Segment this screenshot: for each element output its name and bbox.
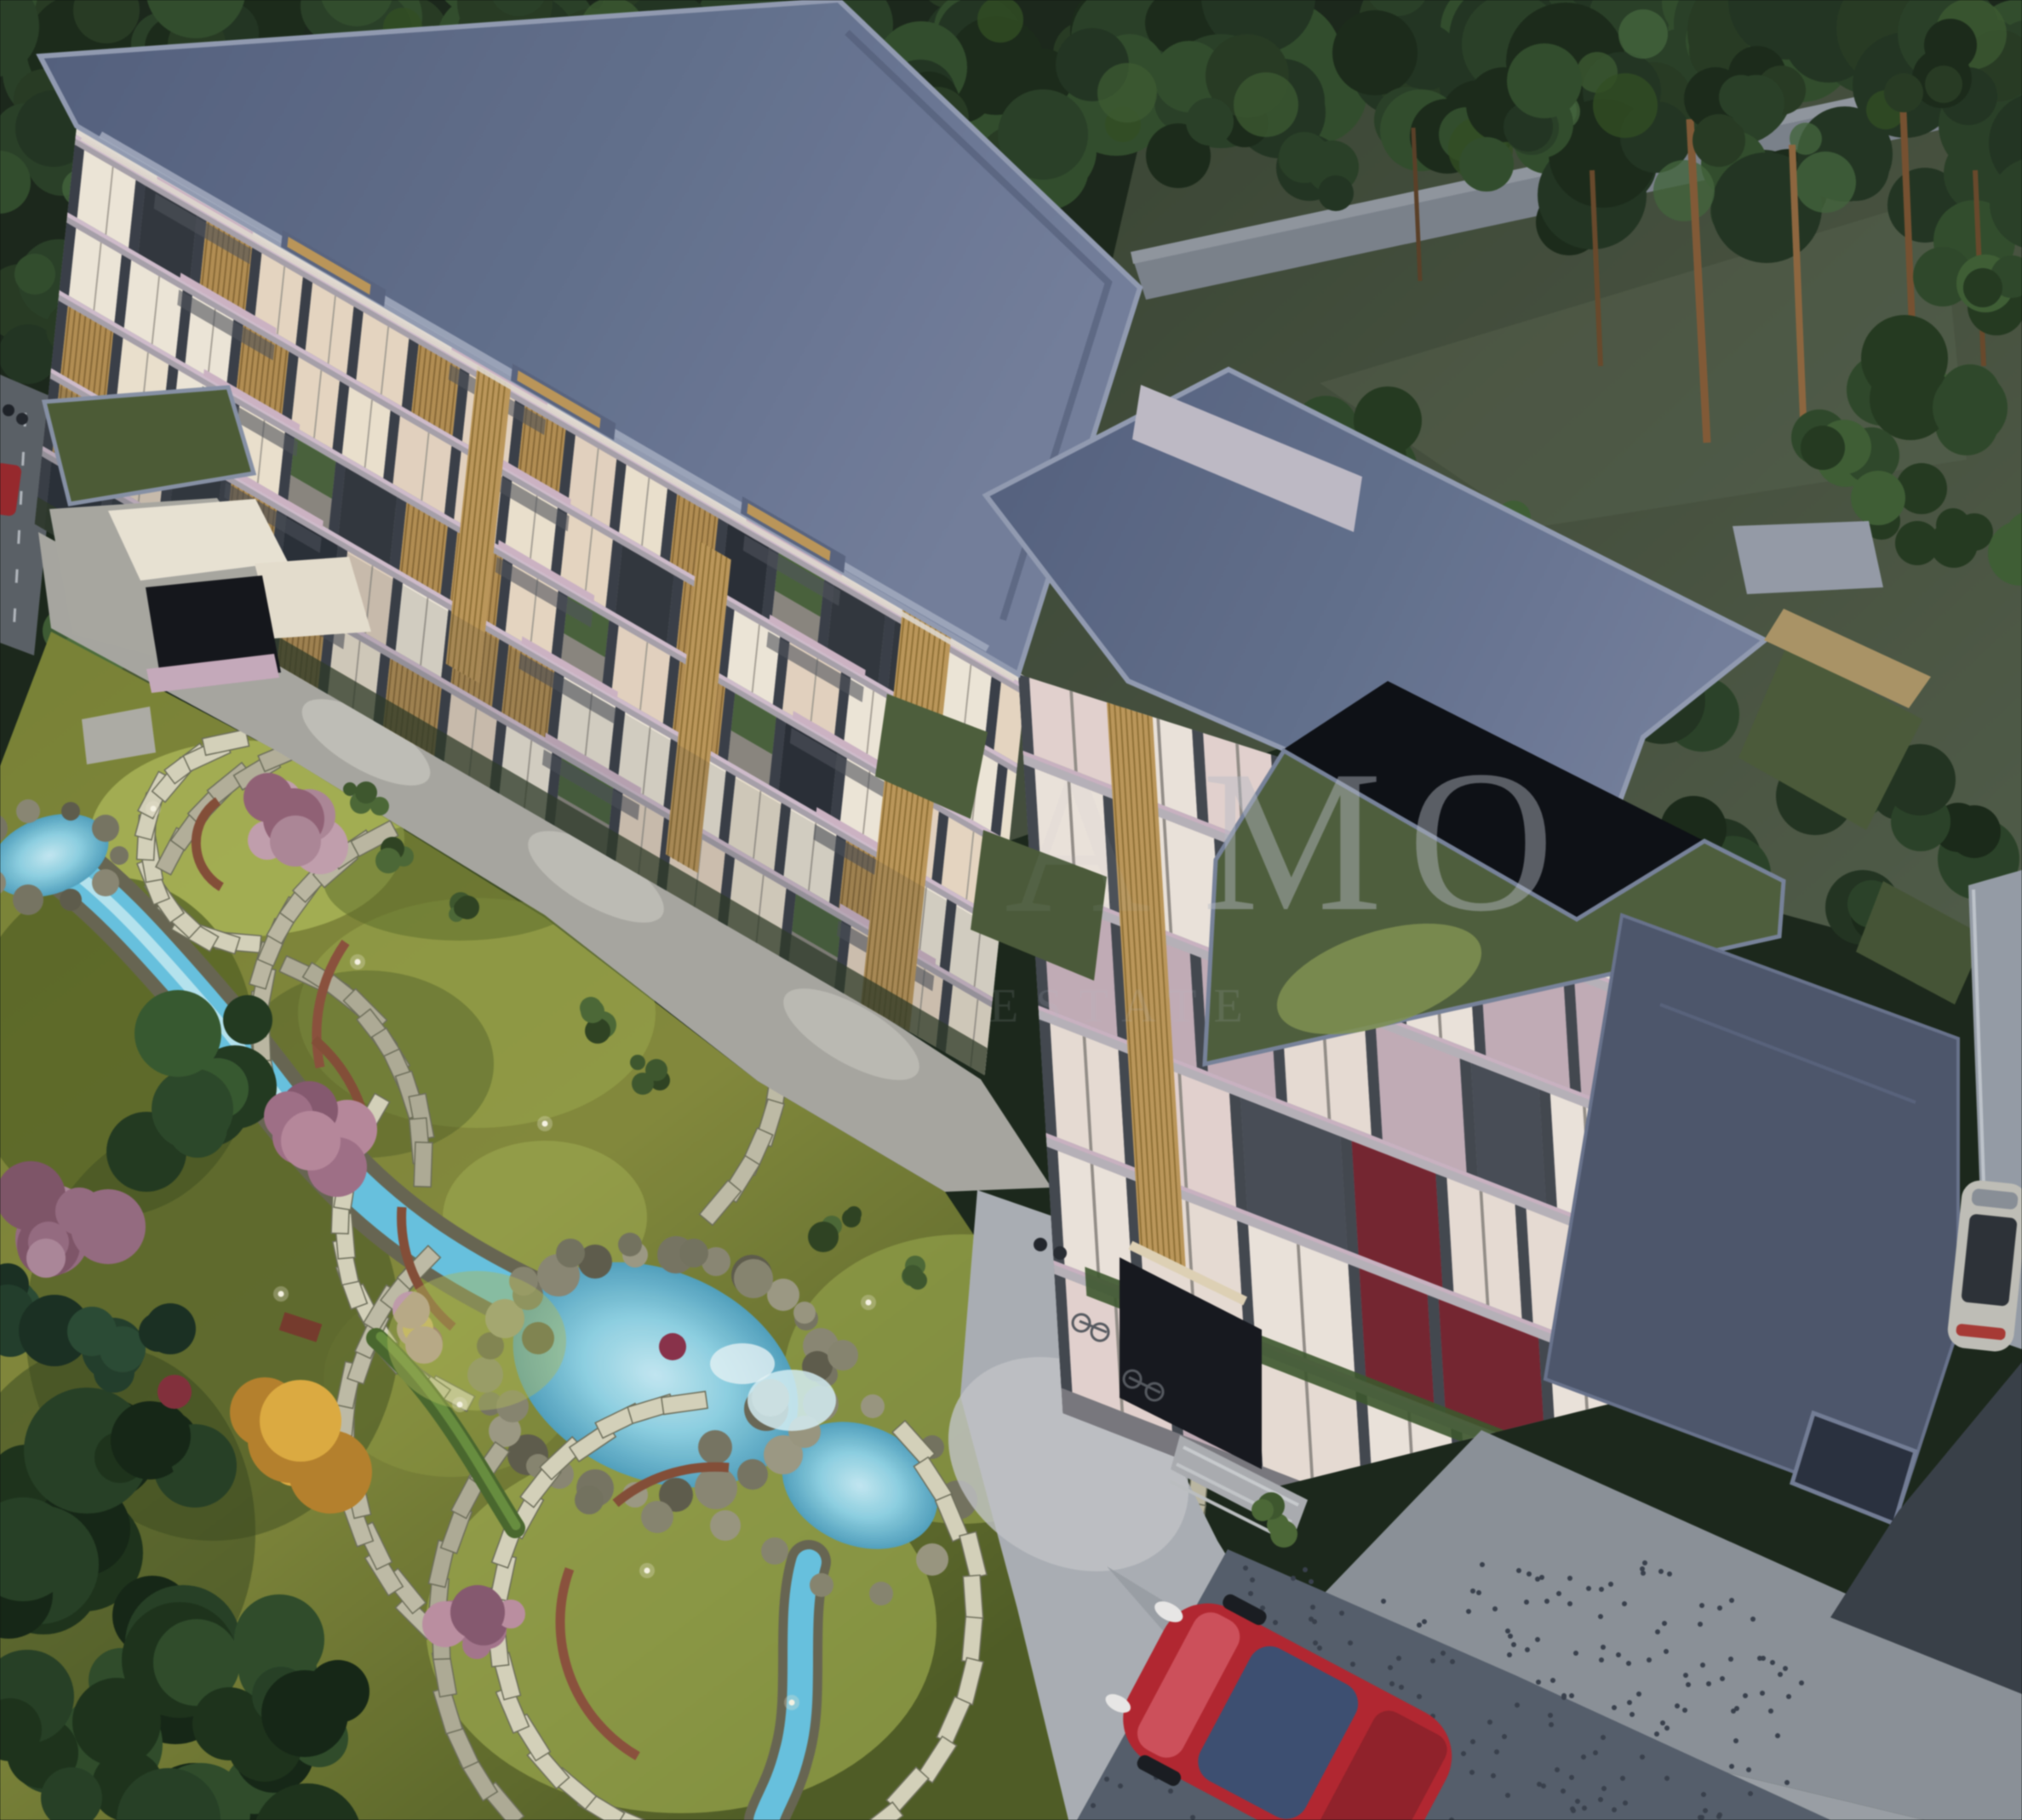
svg-text:A: A [1005,731,1151,955]
svg-text:MO: MO [1202,730,1580,953]
svg-text:ESTATE: ESTATE [989,980,1260,1033]
